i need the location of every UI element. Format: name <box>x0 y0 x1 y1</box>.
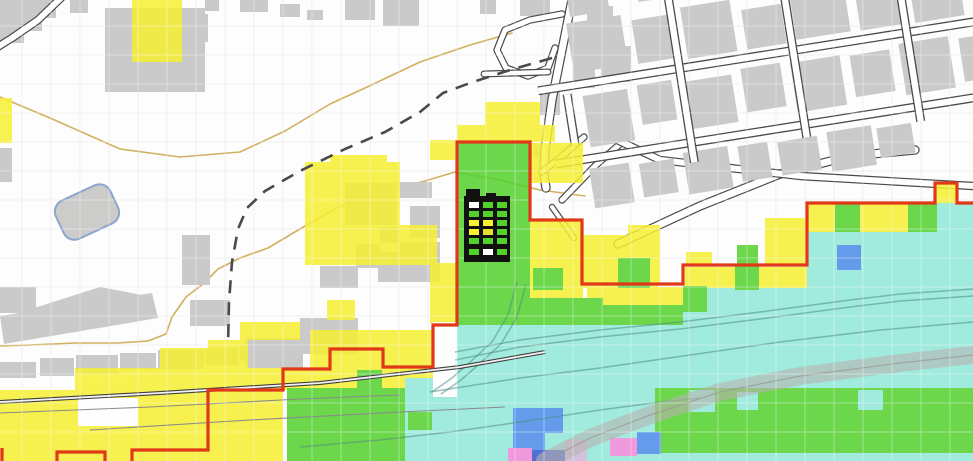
marker-window <box>483 211 493 217</box>
map-svg[interactable] <box>0 0 973 461</box>
marker-window <box>469 211 479 217</box>
marker-window <box>497 220 507 226</box>
marker-window <box>483 220 493 226</box>
marker-window <box>469 238 479 244</box>
building-marker-icon[interactable] <box>464 189 510 262</box>
marker-window <box>469 229 479 235</box>
marker-window <box>497 202 507 208</box>
marker-window <box>497 229 507 235</box>
flood-hazard-map-canvas[interactable] <box>0 0 973 461</box>
marker-window <box>483 202 493 208</box>
marker-window <box>469 249 479 255</box>
marker-window <box>483 238 493 244</box>
marker-window <box>469 202 479 208</box>
marker-window <box>497 249 507 255</box>
marker-window <box>497 238 507 244</box>
marker-window <box>483 229 493 235</box>
marker-window <box>483 249 493 255</box>
marker-window <box>469 220 479 226</box>
marker-window <box>497 211 507 217</box>
